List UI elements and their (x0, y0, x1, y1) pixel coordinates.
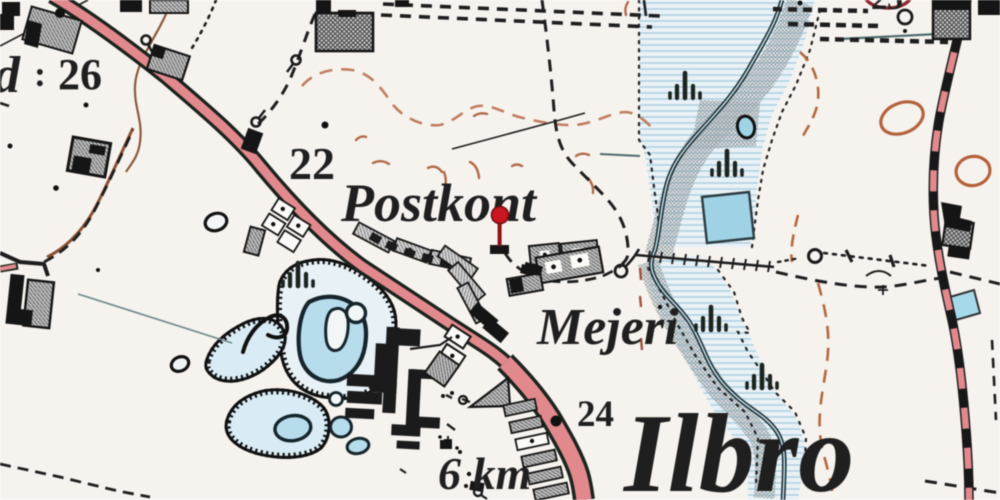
svg-text:24: 24 (577, 394, 614, 435)
svg-text:Postkont: Postkont (340, 173, 538, 233)
svg-text:Ilbro: Ilbro (622, 392, 854, 500)
svg-text:25: 25 (871, 0, 903, 16)
svg-text::: : (34, 54, 46, 94)
svg-text:d: d (0, 47, 21, 104)
svg-text:22: 22 (289, 138, 335, 189)
svg-text:26: 26 (58, 50, 102, 99)
svg-text:6 km: 6 km (438, 448, 531, 499)
svg-text:Mejeri: Mejeri (536, 299, 679, 356)
